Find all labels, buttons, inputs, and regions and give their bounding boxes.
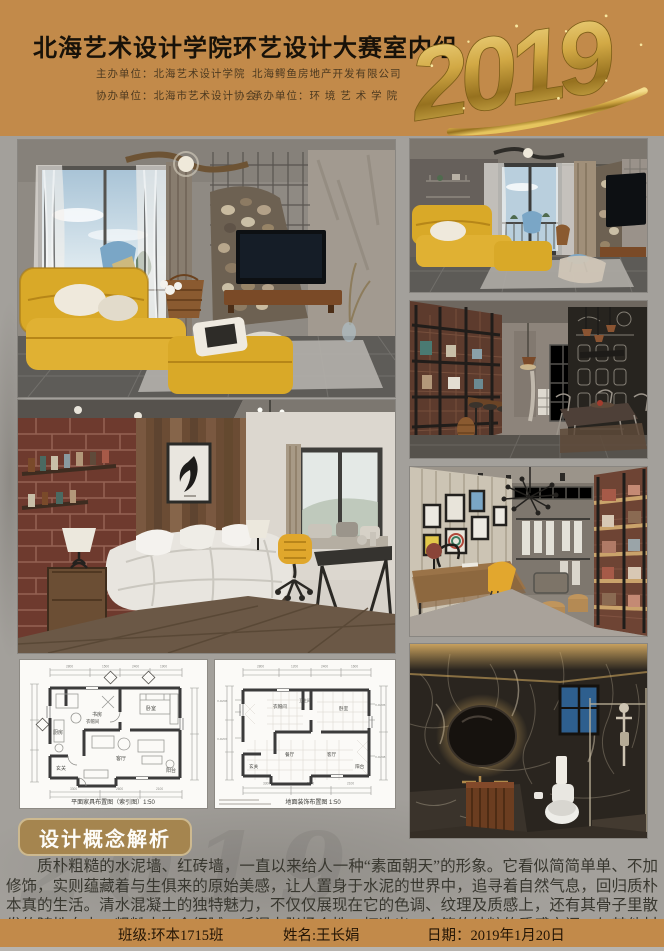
plan-room-bath: 卫生间 <box>299 697 311 703</box>
svg-text:2600: 2600 <box>116 787 123 791</box>
plan-left-caption: 平面家具布置图（索引图）1:50 <box>71 798 155 806</box>
floor-plan-flooring: 2800120024001600 330026002100 X-DZ06X-DZ… <box>215 660 395 808</box>
competition-poster: 北海艺术设计学院环艺设计大赛室内组 主办单位：北海艺术设计学院 北海鳄鱼房地产开… <box>0 0 664 951</box>
footer-date: 日期：2019年1月20日 <box>427 924 565 945</box>
svg-text:X-DZ07: X-DZ07 <box>217 737 228 741</box>
photo-living-room-balcony <box>410 139 647 292</box>
plan-room-balcony2: 阳台 <box>355 763 365 770</box>
plan-right-caption: 地面装饰布置图 1:50 <box>285 798 341 806</box>
svg-text:1200: 1200 <box>291 665 298 669</box>
svg-text:2400: 2400 <box>132 665 139 669</box>
undertaker: 承办单位：环 境 艺 术 学 院 <box>252 88 398 103</box>
svg-text:3300: 3300 <box>70 787 77 791</box>
plan-room-living2: 客厅 <box>327 751 337 758</box>
svg-text:2800: 2800 <box>257 665 264 669</box>
svg-text:2400: 2400 <box>321 665 328 669</box>
plan-room-study: 书房 <box>92 711 102 718</box>
svg-text:2100: 2100 <box>156 787 163 791</box>
svg-text:X-DZ08: X-DZ08 <box>375 755 386 759</box>
photo-study-cloakroom <box>410 467 647 636</box>
host-organizer: 主办单位：北海艺术设计学院 <box>96 66 246 81</box>
concept-heading: 设计概念解析 <box>39 823 171 852</box>
footer-class: 班级:环本1715班 <box>118 924 224 945</box>
svg-text:1600: 1600 <box>351 665 358 669</box>
floor-plan-furniture: 2800150024001900 330026002100 <box>20 660 207 808</box>
footer-band: 班级:环本1715班 姓名:王长娟 日期：2019年1月20日 <box>0 919 664 947</box>
plan-room-bedroom2: 卧室 <box>339 705 349 712</box>
photo-bedroom <box>18 400 395 653</box>
plan-room-entry2: 玄关 <box>249 763 259 770</box>
bottom-strip <box>0 947 664 951</box>
co-organizer: 协办单位：北海市艺术设计协会 <box>96 88 257 103</box>
header-band: 北海艺术设计学院环艺设计大赛室内组 主办单位：北海艺术设计学院 北海鳄鱼房地产开… <box>0 0 664 136</box>
svg-text:X-DZ06: X-DZ06 <box>217 699 228 703</box>
plan-room-cloak: 衣帽间 <box>86 718 99 725</box>
svg-text:2019: 2019 <box>404 2 622 142</box>
svg-text:X-DZ05: X-DZ05 <box>375 703 386 707</box>
plan-room-dining: 餐厅 <box>285 751 295 758</box>
plan-room-entry: 玄关 <box>56 765 66 772</box>
svg-text:1900: 1900 <box>160 665 167 669</box>
plan-room-bedroom: 卧室 <box>146 705 156 712</box>
plan-room-cloak2: 衣帽间 <box>273 703 287 710</box>
plan-room-kitchen: 厨房 <box>53 729 63 736</box>
photo-dining-room <box>410 301 647 458</box>
year-2019-calligraphy: 2019 <box>404 2 662 142</box>
photo-living-room-main <box>18 140 395 397</box>
svg-text:3300: 3300 <box>263 782 270 786</box>
svg-text:2100: 2100 <box>347 782 354 786</box>
plan-room-living: 客厅 <box>116 755 126 762</box>
host-partner: 北海鳄鱼房地产开发有限公司 <box>252 66 402 81</box>
svg-text:2800: 2800 <box>66 665 73 669</box>
plan-room-balcony: 阳台 <box>166 767 176 774</box>
poster-title: 北海艺术设计学院环艺设计大赛室内组 <box>33 28 458 63</box>
photo-bathroom <box>410 644 647 838</box>
svg-text:1500: 1500 <box>102 665 109 669</box>
concept-heading-badge: 设计概念解析 <box>18 818 192 856</box>
footer-name: 姓名:王长娟 <box>283 924 360 945</box>
